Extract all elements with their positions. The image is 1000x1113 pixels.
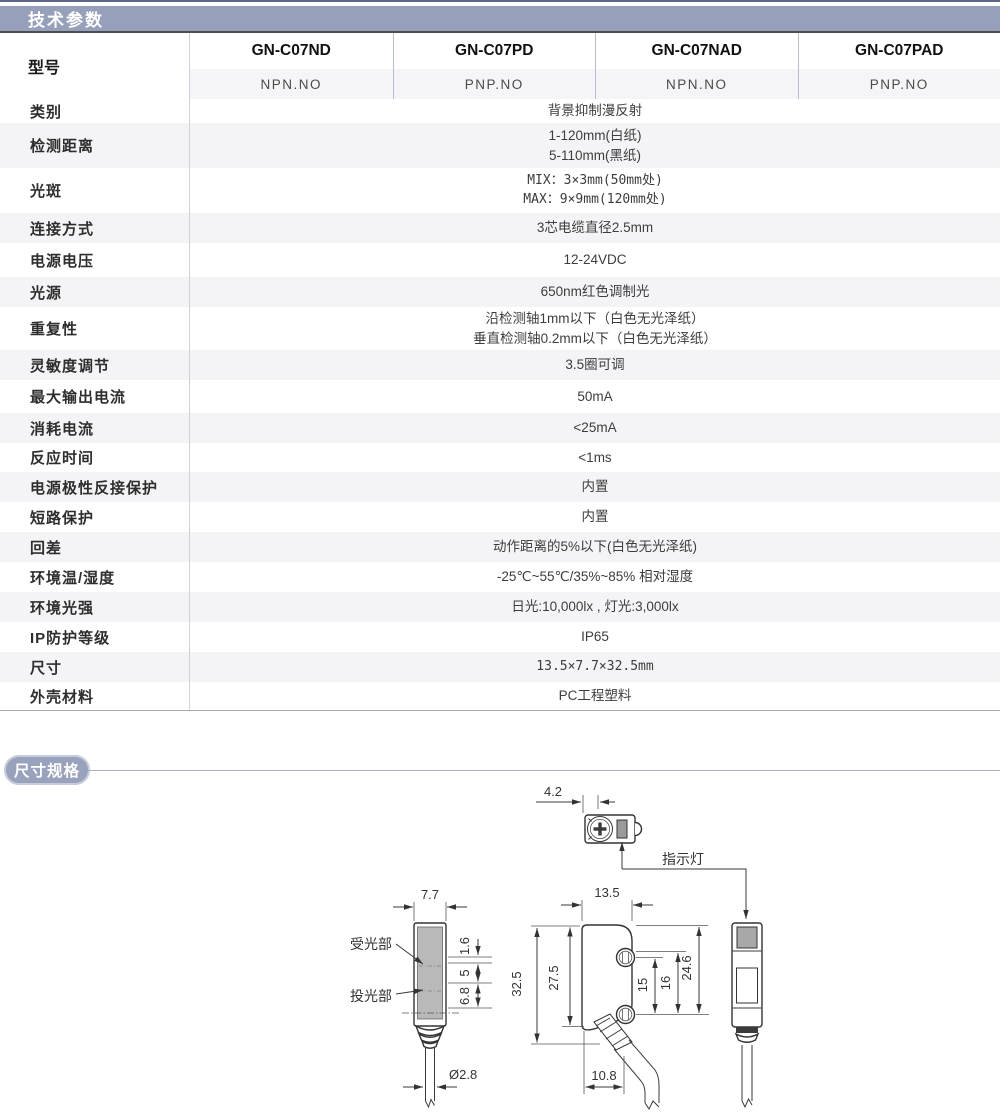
model-name: GN-C07NAD xyxy=(595,33,798,69)
spec-value: 12-24VDC xyxy=(190,243,1000,277)
top-view: 4.2 xyxy=(536,784,642,843)
spec-label: 尺寸 xyxy=(0,652,190,682)
output-type: PNP.NO xyxy=(393,69,596,99)
datasheet-page: 技术参数 型号 GN-C07ND GN-C07PD GN-C07NAD GN-C… xyxy=(0,0,1000,1113)
spec-label: 短路保护 xyxy=(0,502,190,532)
spec-label: 电源电压 xyxy=(0,243,190,277)
dim-hole-pitch: 15 xyxy=(635,978,650,992)
receiver-label: 受光部 xyxy=(350,936,392,952)
spec-label: 检测距离 xyxy=(0,123,190,168)
spec-row: 电源电压12-24VDC xyxy=(0,243,1000,277)
indicator-label: 指示灯 xyxy=(662,851,704,867)
spec-value: -25℃~55℃/35%~85% 相对湿度 xyxy=(190,562,1000,592)
output-type: NPN.NO xyxy=(190,69,393,99)
dimensions-header-line xyxy=(88,770,1000,771)
spec-label: 灵敏度调节 xyxy=(0,350,190,380)
model-name: GN-C07PAD xyxy=(798,33,1000,69)
output-type: PNP.NO xyxy=(798,69,1000,99)
spec-value: IP65 xyxy=(190,622,1000,652)
dimension-drawing: 4.2 指示灯 7.7 受光部 投光部 xyxy=(0,780,1000,1113)
dim-cable-exit-width: 10.8 xyxy=(591,1068,616,1083)
dim-emitter-inset: 6.8 xyxy=(457,987,472,1005)
model-name: GN-C07ND xyxy=(190,33,393,69)
spec-value: 3芯电缆直径2.5mm xyxy=(190,213,1000,243)
spec-row: 检测距离1-120mm(白纸) 5-110mm(黑纸) xyxy=(0,123,1000,168)
dimensions-title: 尺寸规格 xyxy=(14,759,80,781)
spec-table: 型号 GN-C07ND GN-C07PD GN-C07NAD GN-C07PAD… xyxy=(0,31,1000,711)
lens-window xyxy=(418,927,443,1019)
side-view: 13.5 xyxy=(509,885,709,1109)
spec-row: 尺寸13.5×7.7×32.5mm xyxy=(0,652,1000,682)
spec-value: 1-120mm(白纸) 5-110mm(黑纸) xyxy=(190,123,1000,168)
rear-view xyxy=(732,923,762,1107)
spec-label: IP防护等级 xyxy=(0,622,190,652)
spec-value: <1ms xyxy=(190,443,1000,472)
top-border-line xyxy=(0,0,1000,2)
emitter-label: 投光部 xyxy=(350,988,392,1004)
dim-body-width: 13.5 xyxy=(594,885,619,900)
dim-hole-offset: 24.6 xyxy=(679,955,694,980)
dim-hole-span: 16 xyxy=(658,976,673,990)
dim-window-gap: 5 xyxy=(457,969,472,976)
dim-total-height: 32.5 xyxy=(509,971,524,996)
spec-value: PC工程塑料 xyxy=(190,682,1000,710)
spec-value: 13.5×7.7×32.5mm xyxy=(190,652,1000,682)
spec-label: 重复性 xyxy=(0,307,190,350)
front-view: 7.7 受光部 投光部 1.6 5 xyxy=(350,887,492,1107)
spec-label: 回差 xyxy=(0,532,190,562)
spec-value: 日光:10,000lx , 灯光:3,000lx xyxy=(190,592,1000,622)
spec-value: 背景抑制漫反射 xyxy=(190,99,1000,123)
spec-label: 电源极性反接保护 xyxy=(0,472,190,502)
model-row-label: 型号 xyxy=(0,33,190,99)
indicator-leader: 指示灯 xyxy=(622,842,746,919)
spec-value: 内置 xyxy=(190,472,1000,502)
dim-front-width: 7.7 xyxy=(421,887,439,902)
dim-adjuster-offset: 4.2 xyxy=(544,784,562,799)
dim-cable-diameter: Ø2.8 xyxy=(449,1067,477,1082)
spec-value: MIX：3×3mm(50mm处) MAX：9×9mm(120mm处) xyxy=(190,168,1000,213)
spec-value: 650nm红色调制光 xyxy=(190,277,1000,307)
tech-params-title: 技术参数 xyxy=(0,6,104,31)
spec-label: 连接方式 xyxy=(0,213,190,243)
spec-label: 类别 xyxy=(0,99,190,123)
spec-row: 电源极性反接保护内置 xyxy=(0,472,1000,502)
spec-label: 环境光强 xyxy=(0,592,190,622)
spec-value: 沿检测轴1mm以下（白色无光泽纸） 垂直检测轴0.2mm以下（白色无光泽纸） xyxy=(190,307,1000,350)
spec-label: 光斑 xyxy=(0,168,190,213)
spec-label: 环境温/湿度 xyxy=(0,562,190,592)
spec-row: 短路保护内置 xyxy=(0,502,1000,532)
model-name: GN-C07PD xyxy=(393,33,596,69)
indicator-light xyxy=(737,927,757,948)
dim-body-height: 27.5 xyxy=(546,965,561,990)
spec-label: 光源 xyxy=(0,277,190,307)
spec-row: 环境光强日光:10,000lx , 灯光:3,000lx xyxy=(0,592,1000,622)
spec-label: 外壳材料 xyxy=(0,682,190,710)
dim-receiver-inset: 1.6 xyxy=(457,937,472,955)
spec-row: 反应时间<1ms xyxy=(0,443,1000,472)
spec-row: 类别背景抑制漫反射 xyxy=(0,99,1000,123)
spec-row: 外壳材料PC工程塑料 xyxy=(0,682,1000,710)
tech-params-header-bar: 技术参数 xyxy=(0,6,1000,31)
spec-label: 最大输出电流 xyxy=(0,380,190,413)
spec-value: 内置 xyxy=(190,502,1000,532)
spec-row: 重复性沿检测轴1mm以下（白色无光泽纸） 垂直检测轴0.2mm以下（白色无光泽纸… xyxy=(0,307,1000,350)
spec-value: <25mA xyxy=(190,413,1000,443)
spec-label: 消耗电流 xyxy=(0,413,190,443)
spec-row: 光斑MIX：3×3mm(50mm处) MAX：9×9mm(120mm处) xyxy=(0,168,1000,213)
spec-row: 连接方式3芯电缆直径2.5mm xyxy=(0,213,1000,243)
output-type: NPN.NO xyxy=(595,69,798,99)
spec-row: 最大输出电流50mA xyxy=(0,380,1000,413)
spec-row: 环境温/湿度-25℃~55℃/35%~85% 相对湿度 xyxy=(0,562,1000,592)
spec-row: 灵敏度调节3.5圈可调 xyxy=(0,350,1000,380)
spec-value: 动作距离的5%以下(白色无光泽纸) xyxy=(190,532,1000,562)
spec-row: 消耗电流<25mA xyxy=(0,413,1000,443)
spec-value: 3.5圈可调 xyxy=(190,350,1000,380)
spec-value: 50mA xyxy=(190,380,1000,413)
spec-table-header: 型号 GN-C07ND GN-C07PD GN-C07NAD GN-C07PAD… xyxy=(0,33,1000,99)
spec-row: 光源650nm红色调制光 xyxy=(0,277,1000,307)
spec-label: 反应时间 xyxy=(0,443,190,472)
spec-row: 回差动作距离的5%以下(白色无光泽纸) xyxy=(0,532,1000,562)
spec-row: IP防护等级IP65 xyxy=(0,622,1000,652)
